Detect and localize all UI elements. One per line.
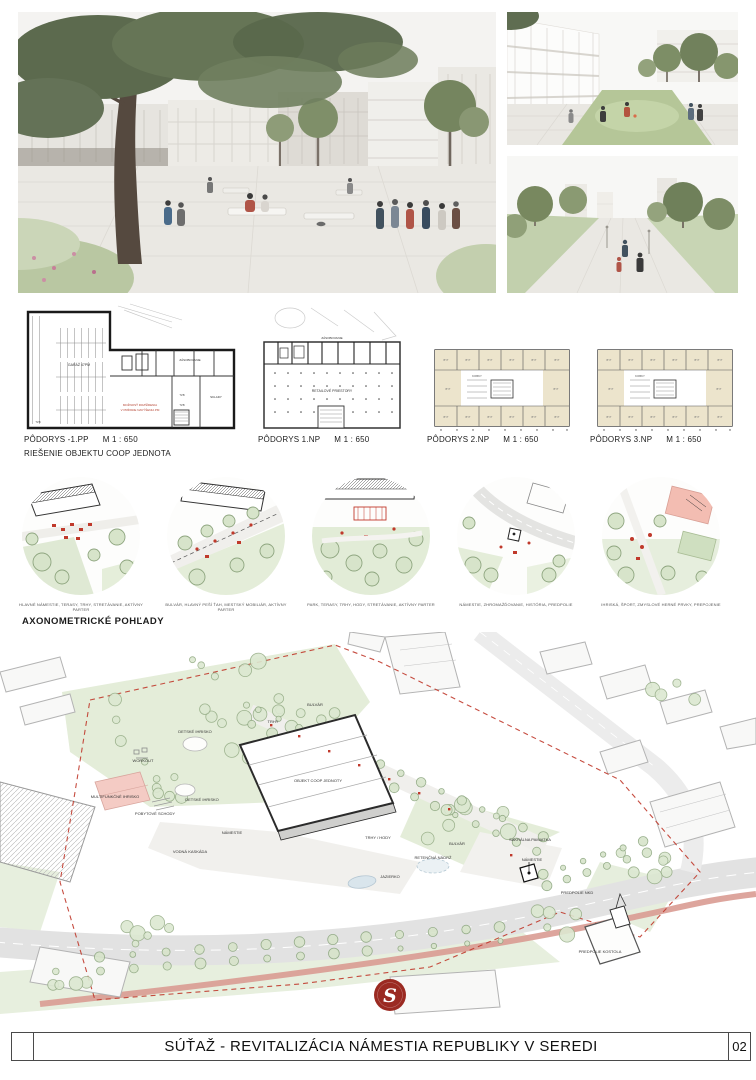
plan4-cells-label: KOBKY [635,374,645,378]
axo-view-main-square: HLAVNÉ NÁMESTIE, TERASY, TRHY, STRETÁVAN… [13,477,149,612]
axo-view-playgrounds: IHRISKÁ, ŠPORT, ZMYSLOVÉ HERNÉ PRVKY, PR… [593,477,729,607]
svg-text:BYT: BYT [650,415,655,419]
site-plan: S BULVÁR TRHY DETSKÉ IHRISKO WORKOUT OBJ… [0,632,756,1032]
board-page-number: 02 [729,1033,750,1060]
label-multifunkcne-ihrisko: MULTIFUNKČNÉ IHRISKO [91,794,140,799]
site-plan-drawing: S BULVÁR TRHY DETSKÉ IHRISKO WORKOUT OBJ… [0,632,756,1032]
axo-circle-4 [457,477,575,595]
svg-text:BYT: BYT [694,415,699,419]
competition-board: GARÁŽ 47PM MOŽNOSŤ ROZŠÍRENIA V PRÍPADE … [0,0,756,1080]
render-main-plaza [18,12,496,293]
svg-text:BYT: BYT [445,387,450,391]
plan1-tzb-label: TZB [179,393,184,397]
svg-text:BYT: BYT [531,358,536,362]
label-predpolie-kostola: PREDPOLIE KOSTOLA [579,949,622,954]
svg-text:BYT: BYT [465,415,470,419]
label-bulvar-top: BULVÁR [307,702,323,707]
svg-text:BYT: BYT [487,358,492,362]
label-pobytove-schody: POBYTOVÉ SCHODY [135,811,175,816]
playground-2 [175,784,195,796]
render-park-path-scene [507,156,738,293]
plan-scale: M 1 : 650 [103,435,138,444]
plan-caption-1np: PÔDORYS 1.NPM 1 : 650 [258,435,369,444]
label-jazierko: JAZIERKO [380,874,400,879]
axo-view-park: PARK, TERASY, TRHY, HODY, STRETÁVANIE, A… [303,477,439,607]
svg-text:BYT: BYT [554,358,559,362]
svg-text:BYT: BYT [608,387,613,391]
plan1-note-line2: V PRÍPADE NAVÝŠENIA PM [121,407,160,412]
label-namestie-1: NÁMESTIE [222,830,243,835]
svg-text:BYT: BYT [717,415,722,419]
axo-circle-3 [312,477,430,595]
axo-circle-5 [602,477,720,595]
axo-circle-2 [167,477,285,595]
render-park-path [507,156,738,293]
board-title: SÚŤAŽ - REVITALIZÁCIA NÁMESTIA REPUBLIKY… [34,1033,729,1060]
axo-circle-1 [22,477,140,595]
axo-caption-2: BULVÁR, HLAVNÝ PEŠÍ ŤAH, MESTSKÝ MOBILIÁ… [158,602,294,612]
plan-title: PÔDORYS -1.PP [24,435,89,444]
label-trhy: TRHY [268,719,279,724]
svg-text:BYT: BYT [716,387,721,391]
render-boulevard-scene [507,12,738,145]
label-predpolie-nkd: PREDPOLIE NKD [561,890,594,895]
floor-plan-2np: KOBKY BYT BYT BYT BYT BYT BYT BYT BYT BY… [427,344,577,432]
label-workout: WORKOUT [133,758,154,763]
svg-text:BYT: BYT [694,358,699,362]
svg-text:BYT: BYT [628,415,633,419]
floor-plan-1np: ZÁSOBOVANIE RETAILOVÉ PRIESTORY [256,302,408,432]
svg-text:BYT: BYT [554,415,559,419]
title-block-left-cell [12,1033,34,1060]
plan1-storage-label: SKLADY [210,395,222,399]
label-vodna-kaskada: VODNÁ KASKÁDA [173,849,208,854]
plan-scale: M 1 : 650 [666,435,701,444]
axo-caption-3: PARK, TERASY, TRHY, HODY, STRETÁVANIE, A… [307,602,435,607]
plan-title: PÔDORYS 2.NP [427,435,489,444]
plan1-garage-label: GARÁŽ 47PM [68,362,90,367]
label-namestie-2: NÁMESTIE [522,857,543,862]
svg-text:BYT: BYT [606,358,611,362]
svg-text:BYT: BYT [717,358,722,362]
floor-plan-minus-1pp: GARÁŽ 47PM MOŽNOSŤ ROZŠÍRENIA V PRÍPADE … [22,302,240,432]
svg-text:BYT: BYT [509,415,514,419]
plan-title: PÔDORYS 3.NP [590,435,652,444]
plan1-note-line1: MOŽNOSŤ ROZŠÍRENIA [123,402,157,407]
svg-text:BYT: BYT [553,387,558,391]
svg-text:BYT: BYT [606,415,611,419]
playground-1 [183,737,207,751]
axo-caption-4: NÁMESTIE, ZHROMAŽĎOVANIE, HISTÓRIA, PRED… [459,602,572,607]
axo-caption-1: HLAVNÉ NÁMESTIE, TERASY, TRHY, STRETÁVAN… [13,602,149,612]
axo-view-square-history: NÁMESTIE, ZHROMAŽĎOVANIE, HISTÓRIA, PRED… [448,477,584,607]
plan2-retail-label: RETAILOVÉ PRIESTORY [312,388,353,393]
retention-basin [417,859,449,873]
plan3-cells-label: KOBKY [472,374,482,378]
studio-logo-icon: S [374,979,406,1011]
svg-text:BYT: BYT [628,358,633,362]
svg-text:BYT: BYT [672,415,677,419]
axonometric-heading: AXONOMETRICKÉ POHĽADY [22,616,164,627]
svg-text:BYT: BYT [443,415,448,419]
plan-title: PÔDORYS 1.NP [258,435,320,444]
render-boulevard [507,12,738,145]
plan1-supply-label: ZÁSOBOVANIE [179,358,200,362]
svg-text:BYT: BYT [509,358,514,362]
label-objekt-coop: OBJEKT COOP JEDNOTY [294,778,342,783]
plan2-supply-label: ZÁSOBOVANIE [321,336,342,340]
plan-caption-2np: PÔDORYS 2.NPM 1 : 650 [427,435,538,444]
label-detske-ihrisko-2: DETSKÉ IHRISKO [185,797,219,802]
plan-scale: M 1 : 650 [334,435,369,444]
label-retencna-nadrz: RETENČNÁ NÁDRŽ [415,855,452,860]
render-main-plaza-scene [18,12,496,293]
axo-caption-5: IHRISKÁ, ŠPORT, ZMYSLOVÉ HERNÉ PRVKY, PR… [601,602,720,607]
plan1-tzb-label: TZB [35,420,40,424]
axo-view-boulevard: BULVÁR, HLAVNÝ PEŠÍ ŤAH, MESTSKÝ MOBILIÁ… [158,477,294,612]
label-bulvar-bottom: BULVÁR [449,841,465,846]
title-block: SÚŤAŽ - REVITALIZÁCIA NÁMESTIA REPUBLIKY… [11,1032,751,1061]
svg-text:S: S [383,985,397,1007]
plan-caption-3np: PÔDORYS 3.NPM 1 : 650 [590,435,701,444]
svg-text:BYT: BYT [650,358,655,362]
svg-text:BYT: BYT [672,358,677,362]
plan-scale: M 1 : 650 [503,435,538,444]
label-trhy-hody: TRHY / HODY [365,835,391,840]
plan-caption-minus-1pp: PÔDORYS -1.PPM 1 : 650 [24,435,138,444]
label-detske-ihrisko-1: DETSKÉ IHRISKO [178,729,212,734]
floor-plan-3np: KOBKY BYT BYT BYT BYT BYT BYT BYT BYT BY… [590,344,740,432]
svg-text:BYT: BYT [531,415,536,419]
svg-text:BYT: BYT [443,358,448,362]
plan1-tzb-label: TZB [179,403,184,407]
plan-subtitle-coop: RIEŠENIE OBJEKTU COOP JEDNOTA [24,449,171,458]
svg-text:BYT: BYT [487,415,492,419]
svg-text:BYT: BYT [465,358,470,362]
label-sakralna-pamiatka: SAKRÁLNA PAMIATKA [509,837,551,842]
